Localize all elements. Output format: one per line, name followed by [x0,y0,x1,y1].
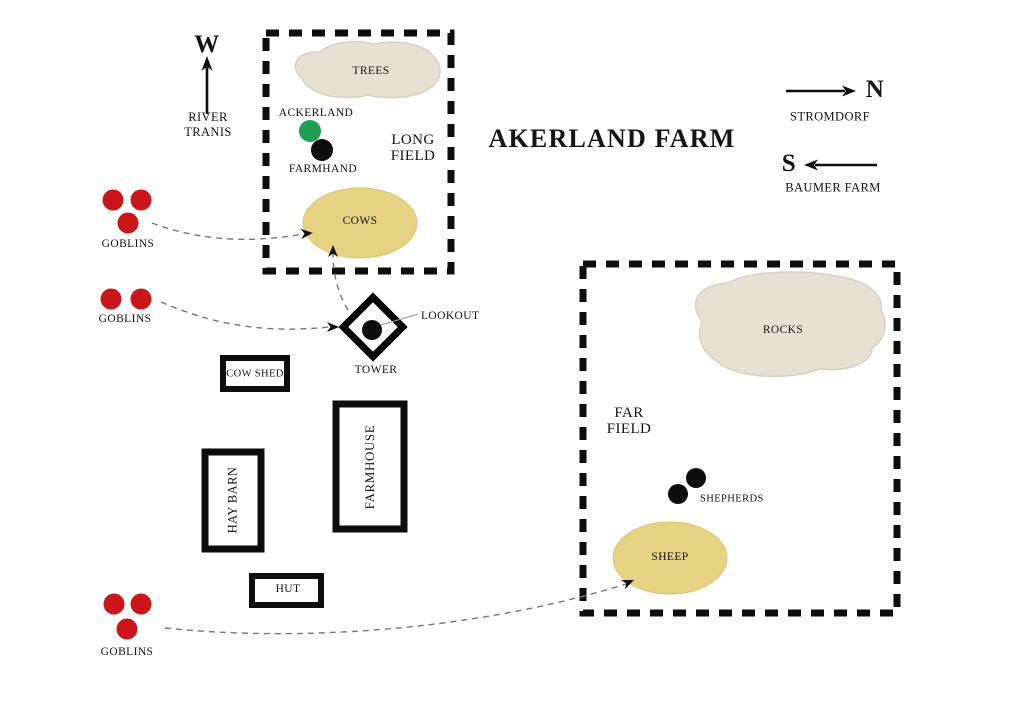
trees-label: TREES [352,65,389,77]
north-arrow-icon [786,86,856,97]
far-field-line1: FAR [614,405,643,421]
tower-label: TOWER [355,364,398,376]
map-title: AKERLAND FARM [489,124,736,154]
rocks-label: ROCKS [763,324,803,336]
goblin-unit-dot [118,213,139,234]
akerland-farm-map: AKERLAND FARM W RIVER TRANIS N STROMDORF… [0,0,1010,714]
compass-west-letter: W [194,31,220,59]
lookout-unit-dot [362,320,382,340]
farmhouse-label: FARMHOUSE [362,425,378,510]
goblins-north-group [103,190,152,234]
goblins-north-label: GOBLINS [102,238,155,250]
cow-shed-label: COW SHED [226,369,284,380]
baumer-farm-label: BAUMER FARM [785,181,881,196]
farmhand-unit-dot [311,139,333,161]
goblin-route-to-sheep [165,584,626,634]
goblin-unit-dot [103,190,124,211]
sheep-label: SHEEP [651,551,688,563]
south-arrow-icon [804,160,877,171]
cows-label: COWS [343,215,378,227]
tower-route-to-cows [333,253,348,310]
goblin-unit-dot [131,190,152,211]
hut-label: HUT [276,583,301,595]
compass-south-letter: S [782,150,796,178]
goblins-south-label: GOBLINS [101,646,154,658]
goblin-unit-dot [101,289,122,310]
ackerland-label: ACKERLAND [279,107,354,119]
goblin-route-to-tower [161,302,329,329]
goblin-unit-dot [131,594,152,615]
ackerland-unit-dot [299,120,321,142]
long-field-line1: LONG [391,132,434,148]
far-field-label: FAR FIELD [607,405,652,437]
compass-north-letter: N [866,76,885,104]
goblin-unit-dot [104,594,125,615]
long-field-line2: FIELD [391,148,436,164]
river-tranis-line1: RIVER [188,110,228,125]
goblins-south-group [104,594,152,640]
west-arrow-icon [202,56,213,114]
shepherd-unit-dot [686,468,706,488]
farmhand-label: FARMHAND [289,163,357,175]
arrowhead-into-tower-icon [327,322,339,332]
goblin-unit-dot [131,289,152,310]
far-field-line2: FIELD [607,421,652,437]
goblins-middle-group [101,289,152,310]
goblins-middle-label: GOBLINS [99,313,152,325]
goblin-unit-dot [117,619,138,640]
river-tranis-label: RIVER TRANIS [184,110,232,140]
long-field-label: LONG FIELD [391,132,436,164]
hay-barn-label: HAY BARN [226,467,241,534]
map-canvas [0,0,1010,714]
shepherds-label: SHEPHERDS [700,494,764,505]
river-tranis-line2: TRANIS [184,125,232,140]
lookout-label: LOOKOUT [421,310,479,322]
goblin-route-to-cows [152,223,303,239]
shepherd-unit-dot [668,484,688,504]
stromdorf-label: STROMDORF [790,110,870,125]
